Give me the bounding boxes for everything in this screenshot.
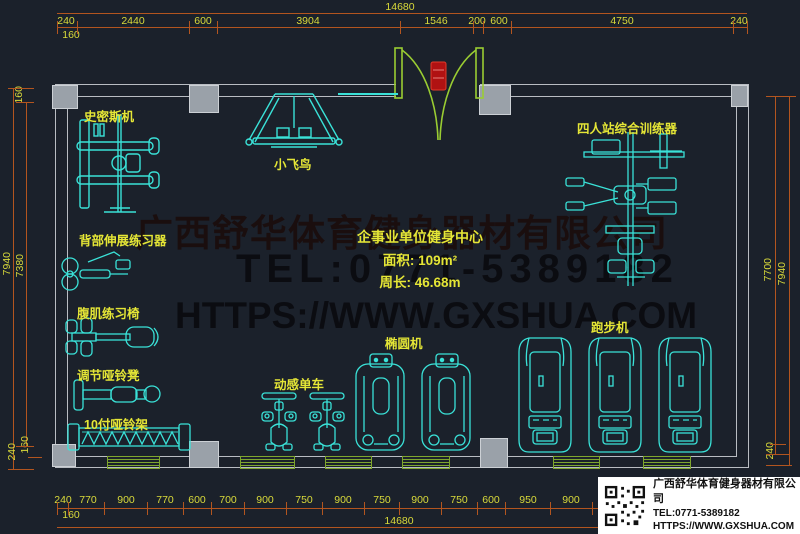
dim-label: 900	[256, 494, 274, 506]
label-back-extension: 背部伸展练习器	[79, 230, 167, 249]
info-box-company: 广西舒华体育健身器材有限公司	[653, 477, 800, 507]
dim-tick	[8, 469, 34, 470]
label-treadmill: 跑步机	[591, 317, 629, 336]
dim-label: 750	[373, 494, 391, 506]
dim-tick	[104, 502, 105, 515]
window-strip	[107, 456, 160, 469]
window-strip	[643, 456, 691, 469]
double-door-drawing[interactable]	[392, 46, 486, 150]
label-dumbbell-rack: 10付哑铃架	[84, 414, 148, 433]
dim-label: 900	[334, 494, 352, 506]
dim-tick	[473, 21, 474, 34]
spin-bike-drawing[interactable]	[306, 390, 348, 454]
company-info-box: 广西舒华体育健身器材有限公司 TEL:0771-5389182 HTTPS://…	[598, 477, 800, 534]
dim-label: 750	[295, 494, 313, 506]
qr-code-icon	[603, 483, 647, 529]
column	[52, 85, 78, 109]
dim-tick	[57, 502, 58, 515]
cad-canvas[interactable]: 广西舒华体育健身器材有限公司 TEL:0771-5389182 HTTPS://…	[0, 0, 800, 534]
label-four-station: 四人站综合训练器	[577, 118, 677, 137]
dim-label: 700	[219, 494, 237, 506]
column	[731, 85, 748, 107]
window-strip	[402, 456, 450, 469]
dim-tick	[766, 96, 796, 97]
dim-label: 600	[188, 494, 206, 506]
treadmill-drawing[interactable]	[657, 336, 713, 456]
dim-tick	[592, 502, 593, 515]
dim-tick	[211, 502, 212, 515]
dim-tick	[733, 21, 734, 34]
dim-tick	[477, 502, 478, 515]
dim-tick	[322, 502, 323, 515]
dim-tick	[189, 21, 190, 34]
dim-label: 14680	[384, 515, 413, 527]
dim-label: 900	[411, 494, 429, 506]
dim-label: 950	[519, 494, 537, 506]
dim-label: 7940	[776, 262, 788, 285]
dim-label: 750	[450, 494, 468, 506]
dim-tick	[68, 502, 69, 515]
label-ab-chair: 腹肌练习椅	[77, 303, 140, 322]
dim-tick	[28, 457, 42, 458]
dim-label: 7700	[762, 258, 774, 281]
room-perimeter: 周长: 46.68m	[330, 271, 510, 291]
dim-line	[57, 27, 747, 28]
dim-tick	[399, 502, 400, 515]
column	[189, 85, 219, 113]
label-dumbbell-bench: 调节哑铃凳	[77, 365, 140, 384]
treadmill-drawing[interactable]	[517, 336, 573, 456]
label-fly-bird: 小飞鸟	[274, 154, 312, 173]
dim-line	[789, 96, 790, 465]
dim-tick	[766, 454, 790, 455]
dim-tick	[16, 102, 34, 103]
room-info: 企事业单位健身中心 面积: 109m² 周长: 46.68m	[330, 227, 510, 291]
dim-label: 600	[194, 15, 212, 27]
dim-label: 160	[62, 509, 80, 521]
dim-label: 4750	[610, 15, 633, 27]
dim-tick	[16, 446, 34, 447]
dim-label: 7940	[1, 252, 13, 275]
dim-tick	[244, 502, 245, 515]
dim-label: 600	[490, 15, 508, 27]
window-strip	[240, 456, 295, 469]
window-strip	[325, 456, 372, 469]
dim-label: 900	[117, 494, 135, 506]
dim-label: 7380	[14, 254, 26, 277]
dim-label: 160	[19, 436, 31, 454]
treadmill-drawing[interactable]	[587, 336, 643, 456]
info-box-url: HTTPS://WWW.GXSHUA.COM	[653, 520, 800, 534]
label-smith-machine: 史密斯机	[84, 106, 134, 125]
info-box-tel: TEL:0771-5389182	[653, 507, 800, 521]
fly-bird-drawing[interactable]	[243, 88, 345, 154]
dim-tick	[183, 502, 184, 515]
dim-tick	[364, 502, 365, 515]
dim-label: 770	[79, 494, 97, 506]
label-spin-bike: 动感单车	[274, 374, 324, 393]
dim-label: 14680	[385, 1, 414, 13]
dim-label: 1546	[424, 15, 447, 27]
label-elliptical: 椭圆机	[385, 333, 423, 352]
ab-chair-drawing[interactable]	[64, 316, 164, 358]
dim-tick	[57, 21, 58, 34]
dim-tick	[441, 502, 442, 515]
elliptical-drawing[interactable]	[354, 352, 408, 456]
dim-tick	[147, 502, 148, 515]
elliptical-drawing[interactable]	[420, 352, 474, 456]
dim-label: 900	[562, 494, 580, 506]
dim-tick	[77, 21, 78, 34]
dim-tick	[217, 21, 218, 34]
dim-label: 240	[57, 15, 75, 27]
dim-line	[57, 13, 747, 14]
dim-tick	[483, 21, 484, 34]
window-strip	[553, 456, 600, 469]
dim-label: 2440	[121, 15, 144, 27]
dim-tick	[8, 88, 34, 89]
four-station-trainer-drawing[interactable]	[562, 126, 704, 294]
dim-tick	[770, 444, 786, 445]
dim-tick	[550, 502, 551, 515]
dim-line	[26, 102, 27, 447]
column	[480, 438, 508, 468]
dim-tick	[286, 502, 287, 515]
dim-tick	[747, 21, 748, 34]
column	[189, 441, 219, 468]
dim-line	[13, 88, 14, 470]
dim-tick	[511, 21, 512, 34]
door-threshold-line	[338, 93, 398, 95]
dim-label: 3904	[296, 15, 319, 27]
dim-label: 600	[482, 494, 500, 506]
room-area: 面积: 109m²	[330, 249, 510, 269]
dim-label: 770	[156, 494, 174, 506]
back-extension-drawing[interactable]	[58, 248, 134, 296]
smith-machine-drawing[interactable]	[74, 112, 166, 216]
spin-bike-drawing[interactable]	[258, 390, 300, 454]
dim-tick	[766, 465, 792, 466]
dim-tick	[400, 21, 401, 34]
room-name: 企事业单位健身中心	[330, 227, 510, 247]
dim-tick	[505, 502, 506, 515]
